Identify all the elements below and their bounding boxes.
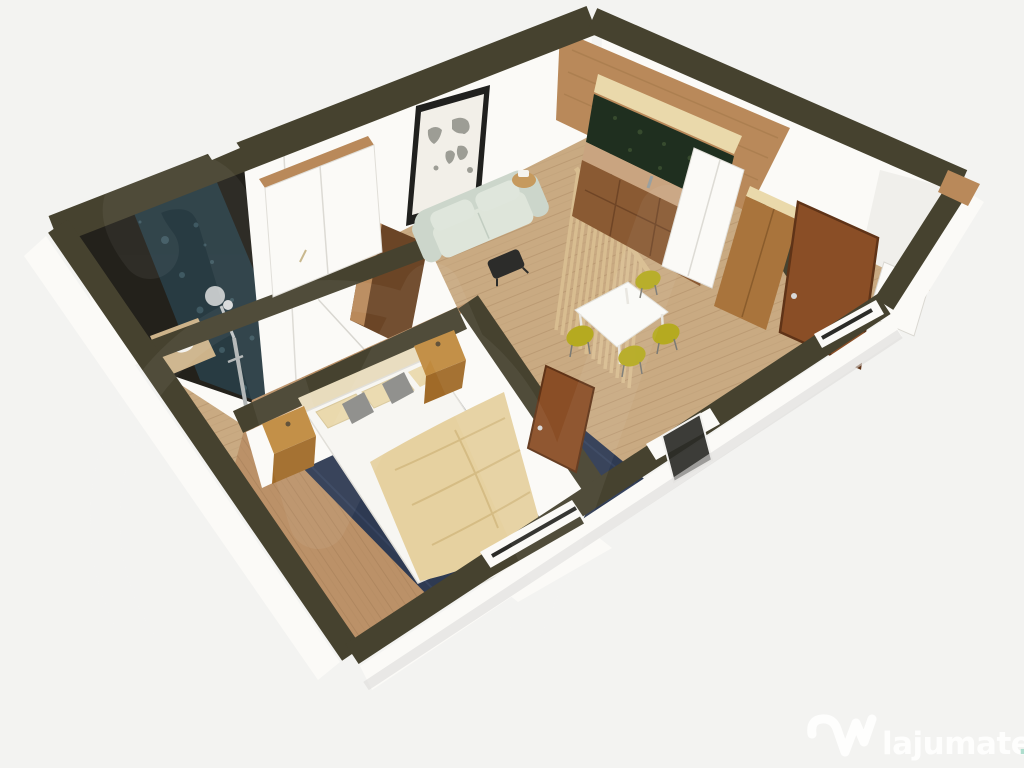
brand-text: lajumate [882,726,1024,762]
lajumate-w-icon [812,719,872,752]
floorplan-3d-render: lajumate .ro [0,0,1024,768]
entry-door-handle [791,293,797,299]
tld-text: .ro [1018,730,1024,761]
watermark-logo: lajumate .ro [812,719,1024,762]
